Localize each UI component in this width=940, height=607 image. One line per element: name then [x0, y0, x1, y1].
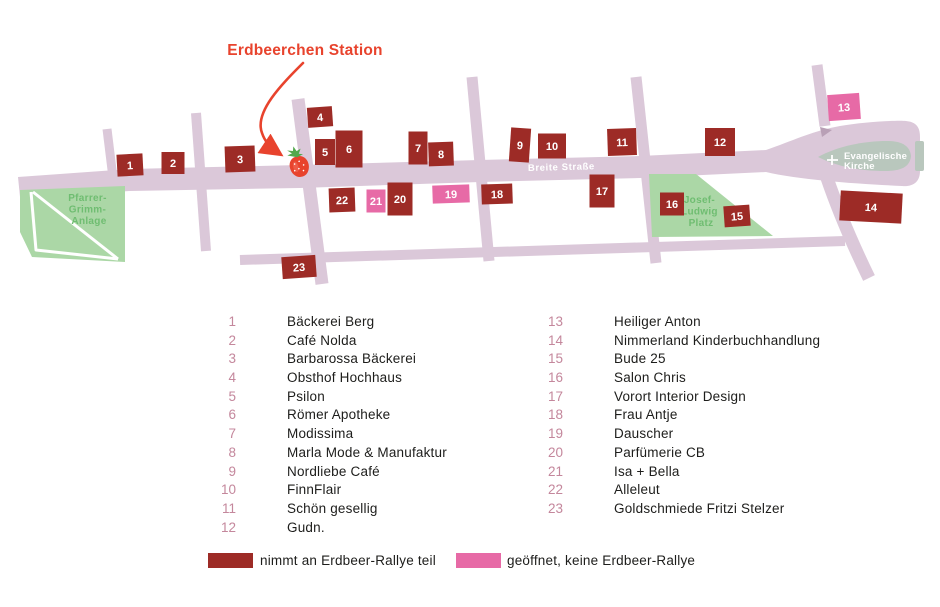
legend-rallye-swatch [208, 553, 253, 569]
directory-row: 8Marla Mode & Manufaktur [208, 444, 538, 463]
directory-name: Dauscher [614, 426, 673, 441]
directory-name: Barbarossa Bäckerei [287, 351, 416, 366]
directory-name: Bude 25 [614, 351, 666, 366]
map-marker-11: 11 [607, 128, 637, 156]
directory-number: 13 [535, 313, 563, 332]
directory-number: 15 [535, 350, 563, 369]
directory-name: Alleleut [614, 482, 660, 497]
map-marker-6: 6 [336, 131, 363, 168]
directory-row: 11Schön gesellig [208, 500, 538, 519]
map-marker-22: 22 [329, 188, 356, 213]
svg-text:9: 9 [516, 140, 523, 152]
svg-text:21: 21 [370, 196, 382, 208]
svg-text:19: 19 [445, 189, 458, 201]
directory-number: 16 [535, 369, 563, 388]
map-marker-1: 1 [116, 153, 143, 176]
directory-name: Marla Mode & Manufaktur [287, 445, 447, 460]
directory-number: 20 [535, 444, 563, 463]
svg-text:15: 15 [731, 211, 744, 224]
directory-column-right: 13Heiliger Anton14Nimmerland Kinderbuchh… [535, 313, 915, 519]
svg-text:5: 5 [322, 147, 328, 159]
directory-row: 20Parfümerie CB [535, 444, 915, 463]
directory-row: 13Heiliger Anton [535, 313, 915, 332]
station-title: Erdbeerchen Station [227, 42, 382, 59]
svg-text:11: 11 [616, 137, 628, 149]
directory-name: Frau Antje [614, 407, 678, 422]
street-north-stub [817, 65, 825, 126]
street-cross-b [196, 113, 206, 251]
directory-row: 1Bäckerei Berg [208, 313, 538, 332]
directory-name: Vorort Interior Design [614, 389, 746, 404]
directory-row: 9Nordliebe Café [208, 463, 538, 482]
rallye-map: Pfarrer- Grimm- Anlage Josef- Ludwig Pla… [0, 0, 940, 300]
directory-row: 15Bude 25 [535, 350, 915, 369]
map-marker-17: 17 [590, 175, 615, 208]
directory-name: Goldschmiede Fritzi Stelzer [614, 501, 784, 516]
directory-row: 14Nimmerland Kinderbuchhandlung [535, 332, 915, 351]
street-name-label: Breite Straße [528, 161, 595, 174]
directory-name: Salon Chris [614, 370, 686, 385]
directory-name: Obsthof Hochhaus [287, 370, 402, 385]
map-marker-19: 19 [432, 184, 470, 203]
street-cross-a [107, 129, 113, 178]
map-marker-12: 12 [705, 128, 735, 156]
directory-name: Bäckerei Berg [287, 314, 374, 329]
map-marker-3: 3 [225, 145, 256, 172]
directory-row: 3Barbarossa Bäckerei [208, 350, 538, 369]
legend-open-label: geöffnet, keine Erdbeer-Rallye [507, 553, 695, 568]
directory-number: 5 [208, 388, 236, 407]
directory-row: 23Goldschmiede Fritzi Stelzer [535, 500, 915, 519]
directory-name: Café Nolda [287, 333, 357, 348]
svg-text:18: 18 [491, 189, 504, 201]
park-label: Pfarrer- Grimm- Anlage [68, 193, 110, 227]
legend-rallye-label: nimmt an Erdbeer-Rallye teil [260, 553, 436, 568]
directory-row: 6Römer Apotheke [208, 406, 538, 425]
directory-name: Heiliger Anton [614, 314, 701, 329]
street-lower-parallel [240, 241, 845, 260]
directory-name: Modissima [287, 426, 353, 441]
church-annex [915, 141, 924, 171]
directory-name: Parfümerie CB [614, 445, 705, 460]
directory-number: 9 [208, 463, 236, 482]
directory-number: 3 [208, 350, 236, 369]
legend-rallye: nimmt an Erdbeer-Rallye teil [208, 552, 436, 569]
directory-number: 22 [535, 481, 563, 500]
legend-open-swatch [456, 553, 501, 569]
directory-name: FinnFlair [287, 482, 341, 497]
directory-number: 7 [208, 425, 236, 444]
directory-name: Gudn. [287, 520, 325, 535]
svg-text:7: 7 [415, 143, 421, 155]
svg-text:22: 22 [336, 195, 349, 207]
map-marker-20: 20 [388, 183, 413, 216]
svg-text:2: 2 [170, 158, 176, 170]
directory-row: 22Alleleut [535, 481, 915, 500]
directory-number: 8 [208, 444, 236, 463]
map-marker-8: 8 [428, 142, 454, 167]
directory-number: 23 [535, 500, 563, 519]
svg-text:3: 3 [237, 154, 244, 166]
map-marker-9: 9 [509, 127, 531, 162]
svg-text:17: 17 [596, 186, 608, 198]
directory-row: 4Obsthof Hochhaus [208, 369, 538, 388]
streets-layer [18, 65, 920, 284]
directory-row: 21Isa + Bella [535, 463, 915, 482]
directory-row: 2Café Nolda [208, 332, 538, 351]
svg-text:8: 8 [438, 149, 445, 161]
map-marker-16: 16 [660, 193, 684, 216]
directory-number: 6 [208, 406, 236, 425]
directory-name: Psilon [287, 389, 325, 404]
map-marker-13: 13 [827, 93, 861, 121]
directory-name: Römer Apotheke [287, 407, 390, 422]
map-marker-4: 4 [307, 106, 333, 128]
directory-number: 10 [208, 481, 236, 500]
directory-number: 17 [535, 388, 563, 407]
svg-text:20: 20 [394, 194, 406, 206]
legend-open: geöffnet, keine Erdbeer-Rallye [456, 552, 695, 569]
directory-name: Nordliebe Café [287, 464, 380, 479]
directory-number: 18 [535, 406, 563, 425]
directory-number: 19 [535, 425, 563, 444]
map-marker-15: 15 [723, 205, 750, 228]
directory-number: 4 [208, 369, 236, 388]
map-marker-2: 2 [162, 152, 185, 174]
svg-text:6: 6 [346, 144, 352, 156]
directory-name: Isa + Bella [614, 464, 680, 479]
map-marker-7: 7 [409, 132, 428, 165]
svg-text:16: 16 [666, 199, 678, 211]
svg-text:14: 14 [865, 202, 879, 215]
map-marker-10: 10 [538, 134, 566, 159]
directory-name: Nimmerland Kinderbuchhandlung [614, 333, 820, 348]
svg-text:10: 10 [546, 141, 558, 153]
map-marker-5: 5 [315, 139, 335, 165]
directory-row: 10FinnFlair [208, 481, 538, 500]
directory-row: 17Vorort Interior Design [535, 388, 915, 407]
directory-number: 11 [208, 500, 236, 519]
svg-text:12: 12 [714, 137, 726, 149]
map-marker-14: 14 [839, 190, 902, 223]
svg-text:1: 1 [127, 160, 134, 172]
map-marker-18: 18 [481, 183, 513, 204]
directory-number: 21 [535, 463, 563, 482]
directory-row: 7Modissima [208, 425, 538, 444]
svg-text:23: 23 [293, 262, 306, 275]
directory-row: 19Dauscher [535, 425, 915, 444]
svg-text:13: 13 [838, 102, 851, 115]
map-marker-21: 21 [367, 190, 386, 213]
directory-number: 2 [208, 332, 236, 351]
directory-number: 14 [535, 332, 563, 351]
directory-number: 12 [208, 519, 236, 538]
directory-column-left: 1Bäckerei Berg2Café Nolda3Barbarossa Bäc… [208, 313, 538, 537]
directory-name: Schön gesellig [287, 501, 378, 516]
directory-number: 1 [208, 313, 236, 332]
directory-row: 12Gudn. [208, 519, 538, 538]
directory-row: 16Salon Chris [535, 369, 915, 388]
directory-row: 18Frau Antje [535, 406, 915, 425]
directory-row: 5Psilon [208, 388, 538, 407]
map-marker-23: 23 [281, 255, 316, 279]
